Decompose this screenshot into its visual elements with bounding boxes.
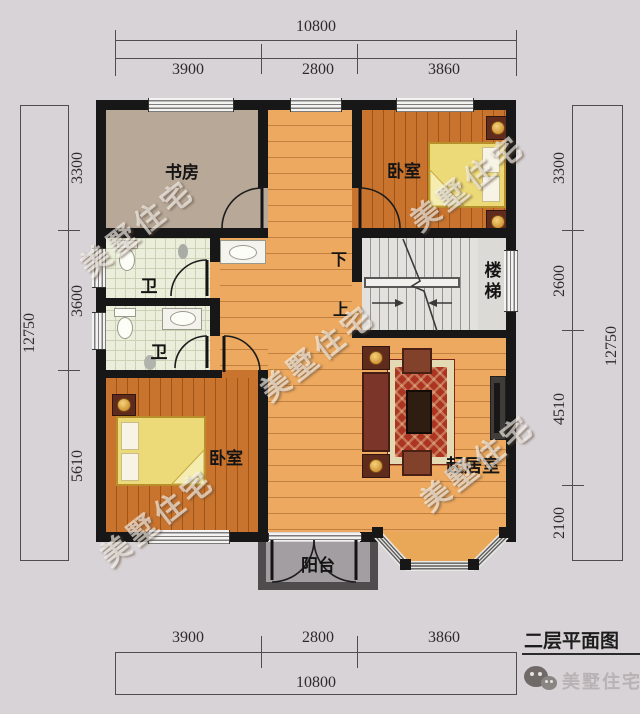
dim-tick <box>115 30 116 76</box>
dim-bottom-seg3: 3860 <box>404 629 484 647</box>
dim-line <box>572 105 573 560</box>
window-stairs <box>504 250 518 312</box>
toilet-bowl-icon <box>119 249 135 271</box>
label-study: 书房 <box>158 158 206 183</box>
wall-bedroom-bottom-top-b <box>258 370 268 378</box>
door-opening <box>210 262 220 298</box>
dim-tick <box>20 560 69 561</box>
label-stairs: 楼梯 <box>483 260 503 302</box>
window-bedroom-bottom <box>148 530 230 544</box>
window-bath-upper <box>92 248 106 288</box>
wall-bath-right-b <box>210 298 220 336</box>
door-opening <box>258 188 268 228</box>
dim-tick <box>20 105 69 106</box>
window-bedroom-top <box>396 98 474 112</box>
dim-left-seg1: 3300 <box>69 138 87 198</box>
wall-bedroom-top-bottom <box>352 228 516 238</box>
lamp-icon <box>369 351 383 365</box>
dim-tick <box>562 230 584 231</box>
window-hallway <box>290 98 342 112</box>
shower-fixture-icon <box>178 244 188 259</box>
toilet-tank-icon <box>116 240 138 249</box>
stair-handrail <box>364 277 460 288</box>
toilet-tank-icon <box>114 308 136 317</box>
vanity-basin-icon <box>229 245 257 260</box>
label-stair-down: 下 <box>330 246 348 270</box>
tv-cabinet <box>490 376 506 440</box>
dim-bottom-seg1: 3900 <box>148 629 228 647</box>
dim-line <box>115 58 517 59</box>
dim-tick <box>572 560 623 561</box>
lamp-icon <box>369 459 383 473</box>
label-stair-up: 上 <box>332 296 350 320</box>
dim-left-seg3: 5610 <box>69 436 87 496</box>
dim-tick <box>562 330 584 331</box>
wall-bath-right-a <box>210 238 220 262</box>
floorplan-canvas: 书房 卧室 卫 卫 楼梯 起居室 卧室 阳台 下 上 美墅住宅 美墅住宅 美墅住… <box>0 0 640 714</box>
pillow <box>121 422 139 450</box>
pillow <box>482 176 500 202</box>
door-opening <box>210 336 220 370</box>
dim-top-seg2: 2800 <box>278 61 358 79</box>
lamp-icon <box>491 121 505 135</box>
plan-title: 二层平面图 <box>524 626 619 653</box>
dim-left-total: 12750 <box>21 303 39 363</box>
brand-logo-text: 美墅住宅 <box>562 668 640 694</box>
wall-outer-bottom-mid <box>360 532 378 542</box>
wall-stairs-left <box>352 238 362 282</box>
dim-tick <box>572 105 623 106</box>
pillow <box>121 453 139 481</box>
wall-study-bottom <box>106 228 268 238</box>
dim-top-seg1: 3900 <box>148 61 228 79</box>
dim-bottom-total: 10800 <box>276 674 356 692</box>
dim-tick <box>58 230 80 231</box>
window-bath-lower <box>92 312 106 350</box>
label-bath-lower: 卫 <box>148 338 170 363</box>
title-underline <box>522 653 640 655</box>
sink-basin-icon <box>170 311 196 326</box>
dim-top-total: 10800 <box>276 18 356 36</box>
dim-right-seg1: 3300 <box>551 138 569 198</box>
dim-tick <box>562 485 584 486</box>
dim-tick <box>516 30 517 76</box>
label-bedroom-top: 卧室 <box>380 157 428 182</box>
dim-top-seg3: 3860 <box>404 61 484 79</box>
dim-tick <box>115 652 116 695</box>
wall-bedroom-top-left <box>352 110 362 188</box>
wall-stairs-bottom <box>352 330 516 338</box>
lamp-icon <box>117 398 131 412</box>
bay-window <box>372 527 510 570</box>
wall-study-right <box>258 110 268 188</box>
label-bath-upper: 卫 <box>138 272 160 297</box>
dim-tick <box>58 370 80 371</box>
balcony-wall-right <box>370 542 378 590</box>
dim-line <box>115 694 517 695</box>
balcony-door-sill <box>268 533 362 541</box>
label-bedroom-bottom: 卧室 <box>202 444 250 469</box>
dim-tick <box>261 636 262 668</box>
wall-bedroom-bottom-right <box>258 378 268 532</box>
dim-right-total: 12750 <box>603 316 621 376</box>
armchair <box>402 450 432 476</box>
dim-tick <box>516 652 517 695</box>
dim-right-seg4: 2100 <box>551 493 569 553</box>
window-study <box>148 98 234 112</box>
door-opening <box>222 370 258 378</box>
dim-bottom-seg2: 2800 <box>278 629 358 647</box>
dim-line <box>622 105 623 560</box>
sofa <box>362 372 390 452</box>
dim-right-seg3: 4510 <box>551 379 569 439</box>
dim-tick <box>261 44 262 74</box>
wall-between-baths <box>106 298 210 306</box>
wall-bedroom-bottom-top-a <box>106 370 222 378</box>
balcony-wall-bottom <box>258 582 378 590</box>
coffee-table <box>406 390 432 434</box>
wechat-icon-small <box>541 676 557 690</box>
stair-entry-opening <box>352 282 362 330</box>
dim-line <box>115 652 517 653</box>
armchair <box>402 348 432 374</box>
lamp-icon <box>491 215 505 229</box>
label-living-room: 起居室 <box>436 452 510 478</box>
dim-left-seg2: 3600 <box>69 271 87 331</box>
label-balcony: 阳台 <box>294 551 342 576</box>
door-opening <box>352 188 362 228</box>
dim-line <box>115 40 517 41</box>
pillow <box>482 147 500 173</box>
toilet-bowl-icon <box>117 317 133 339</box>
dim-right-seg2: 2600 <box>551 251 569 311</box>
bay-window-floor <box>378 532 506 565</box>
